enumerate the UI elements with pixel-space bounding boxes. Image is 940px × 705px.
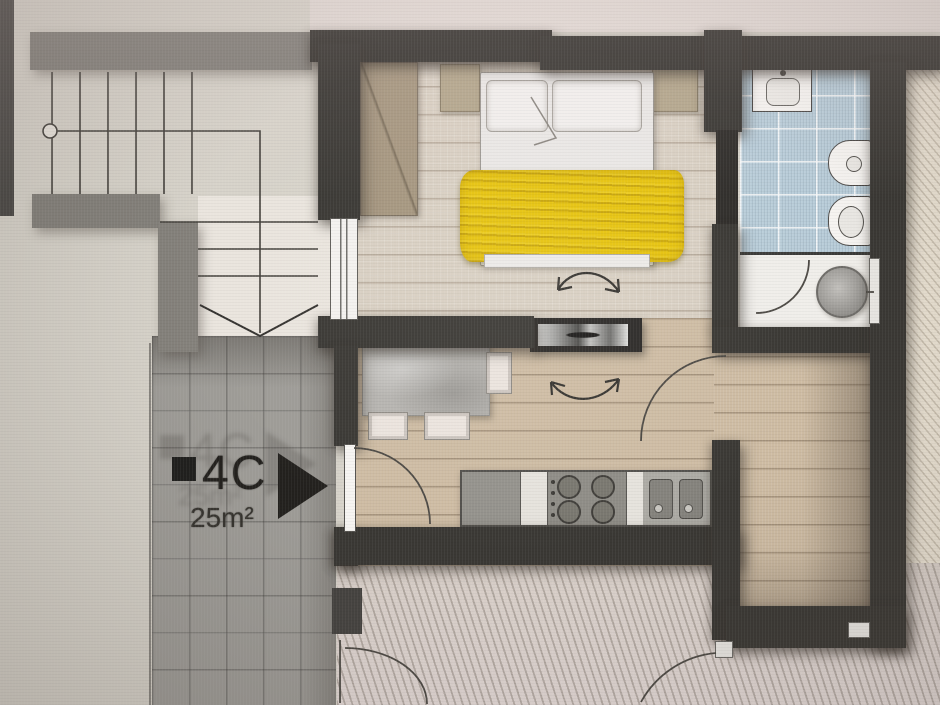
handrail — [57, 131, 260, 333]
bed-sheet-fold-line — [531, 97, 556, 145]
stair-treads-lower — [160, 222, 318, 276]
stair-treads-upper — [52, 72, 192, 194]
rotation-arrow-bottom — [551, 379, 619, 399]
handrail-post — [43, 124, 57, 138]
floor-plan-photo: 4C 25m² — [0, 0, 940, 705]
shower-door-swing — [756, 260, 809, 313]
neighbour-door-swing-1 — [345, 648, 427, 704]
rotation-arrow-top — [558, 273, 619, 292]
entry-door-swing — [354, 448, 430, 524]
neighbour-door-swing-2 — [641, 653, 716, 702]
corridor-door-swing — [641, 356, 726, 441]
plan-linework — [0, 0, 940, 705]
unit-marker-square — [172, 457, 196, 481]
unit-marker: 4C 25m² — [150, 440, 360, 550]
unit-label: 4C — [202, 446, 267, 501]
unit-area: 25m² — [190, 502, 254, 534]
stairs-direction-arrow — [200, 305, 318, 336]
unit-direction-triangle — [278, 453, 328, 519]
